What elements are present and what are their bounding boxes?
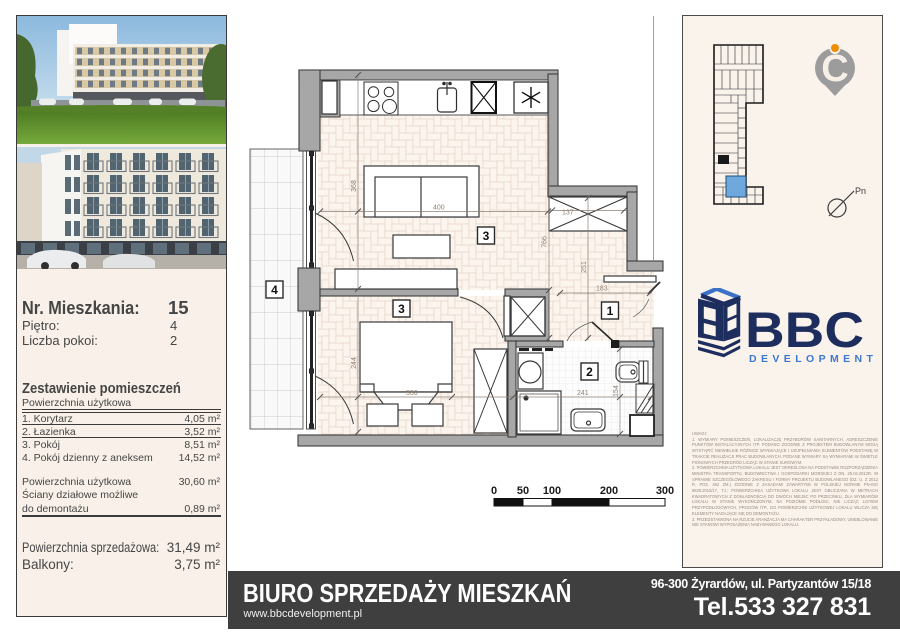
svg-text:100: 100 (543, 485, 561, 497)
svg-text:766: 766 (542, 236, 549, 248)
svg-text:154: 154 (613, 385, 620, 397)
svg-text:137: 137 (562, 210, 574, 217)
svg-text:C: C (821, 48, 848, 90)
svg-text:2: 2 (586, 365, 593, 379)
svg-text:Pn: Pn (855, 186, 866, 196)
svg-text:3: 3 (483, 229, 490, 243)
svg-text:244: 244 (351, 357, 358, 369)
svg-text:BBC: BBC (745, 302, 864, 358)
svg-text:400: 400 (433, 205, 445, 212)
svg-text:0: 0 (491, 485, 497, 497)
svg-text:DEVELOPMENT: DEVELOPMENT (749, 353, 877, 365)
svg-text:183: 183 (596, 286, 608, 293)
svg-text:200: 200 (600, 485, 618, 497)
svg-text:4: 4 (271, 283, 278, 297)
svg-text:241: 241 (577, 390, 589, 397)
svg-text:50: 50 (517, 485, 529, 497)
svg-text:251: 251 (581, 261, 588, 273)
svg-text:3: 3 (398, 302, 405, 316)
svg-text:330: 330 (406, 390, 418, 397)
svg-text:1: 1 (607, 304, 614, 318)
svg-text:300: 300 (656, 485, 674, 497)
svg-text:368: 368 (351, 180, 358, 192)
